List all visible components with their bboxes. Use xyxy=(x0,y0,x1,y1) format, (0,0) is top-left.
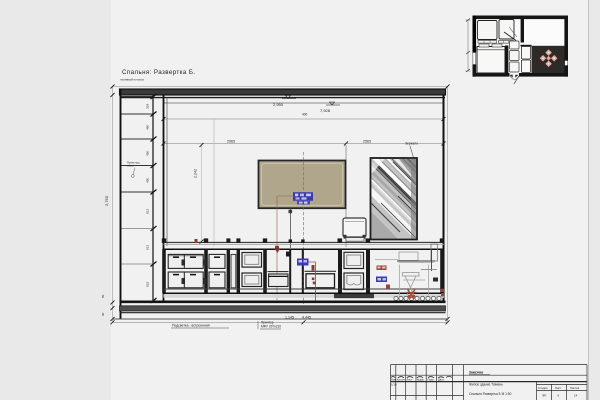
svg-text:Изм: Изм xyxy=(391,377,396,381)
svg-text:Спальня: Развертка Б.: Спальня: Развертка Б. xyxy=(122,69,195,76)
svg-text:1,145: 1,145 xyxy=(285,316,294,320)
svg-text:№док.: №док. xyxy=(417,378,425,381)
svg-text:Жилое здание Тюмень: Жилое здание Тюмень xyxy=(469,382,503,386)
svg-text:Стадия: Стадия xyxy=(538,386,548,390)
svg-text:Лист: Лист xyxy=(407,377,413,381)
svg-text:натяжной потолок: натяжной потолок xyxy=(121,78,145,82)
svg-text:Заказчик: Заказчик xyxy=(469,371,483,375)
svg-text:512: 512 xyxy=(146,245,150,250)
svg-text:318: 318 xyxy=(146,104,150,109)
svg-text:4,445: 4,445 xyxy=(302,316,311,320)
svg-text:Подп.: Подп. xyxy=(428,377,435,381)
svg-text:2,950: 2,950 xyxy=(273,102,284,107)
svg-text:ЭП: ЭП xyxy=(542,394,546,398)
svg-text:Зеркало: Зеркало xyxy=(405,142,418,146)
svg-text:2965: 2965 xyxy=(227,140,235,144)
svg-text:14: 14 xyxy=(574,394,578,398)
svg-text:Спальня Развертка Б М 1:50: Спальня Развертка Б М 1:50 xyxy=(469,392,512,396)
svg-text:400: 400 xyxy=(302,113,308,117)
svg-text:7,928: 7,928 xyxy=(320,108,331,113)
svg-text:Листов: Листов xyxy=(570,386,580,390)
svg-text:515: 515 xyxy=(146,282,150,287)
svg-text:2565: 2565 xyxy=(363,140,371,144)
svg-text:450: 450 xyxy=(146,151,150,156)
svg-text:Лист: Лист xyxy=(555,386,562,390)
svg-text:512: 512 xyxy=(146,209,150,214)
svg-text:50: 50 xyxy=(101,294,105,298)
svg-text:Дата: Дата xyxy=(438,377,444,381)
svg-text:60: 60 xyxy=(101,312,105,316)
svg-text:2,750: 2,750 xyxy=(104,195,109,206)
svg-text:2,242: 2,242 xyxy=(194,169,198,178)
svg-text:обувь: обувь xyxy=(127,164,135,168)
svg-text:1/10: 1/10 xyxy=(391,383,397,387)
svg-text:МФУ 297х210: МФУ 297х210 xyxy=(261,325,281,329)
svg-text:Подсветка - встроенная: Подсветка - встроенная xyxy=(172,324,210,328)
svg-text:450: 450 xyxy=(146,125,150,130)
svg-text:450: 450 xyxy=(146,178,150,183)
